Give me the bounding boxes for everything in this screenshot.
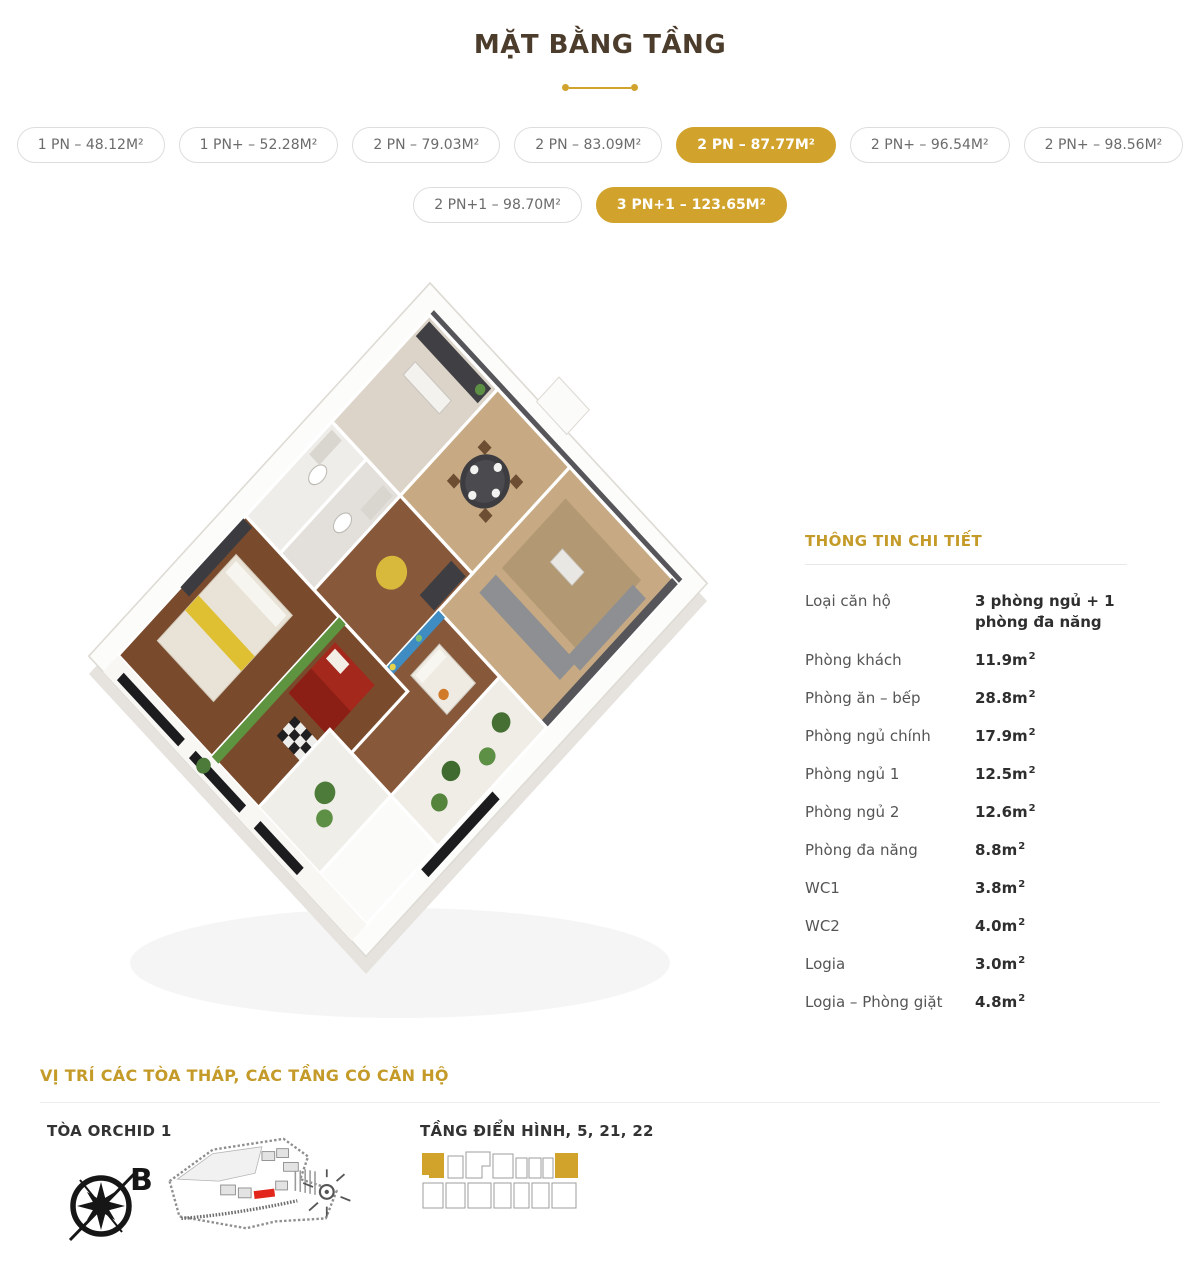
details-panel: THÔNG TIN CHI TIẾT Loại căn hộ 3 phòng n… bbox=[805, 532, 1127, 1030]
floorplan-3d-render bbox=[80, 268, 770, 1050]
detail-label: Phòng đa năng bbox=[805, 840, 975, 861]
area-value: 17.9m bbox=[975, 727, 1028, 745]
floor-plate-diagram bbox=[420, 1146, 580, 1212]
detail-label: WC2 bbox=[805, 916, 975, 937]
detail-label: Phòng khách bbox=[805, 650, 975, 671]
compass-north-label: B bbox=[130, 1163, 153, 1198]
detail-label: Phòng ngủ 2 bbox=[805, 802, 975, 823]
divider-dot bbox=[562, 84, 569, 91]
unit-tab-2-pn-83-09m[interactable]: 2 PN – 83.09M² bbox=[514, 127, 662, 163]
unit-tab-3-pn-1-123-65m[interactable]: 3 PN+1 – 123.65M² bbox=[596, 187, 787, 223]
detail-value: 12.5m2 bbox=[975, 764, 1036, 785]
highlighted-unit-left bbox=[422, 1153, 444, 1178]
detail-row: Logia3.0m2 bbox=[805, 954, 1127, 975]
unit-tab-1-pn-52-28m[interactable]: 1 PN+ – 52.28M² bbox=[179, 127, 339, 163]
detail-label: Loại căn hộ bbox=[805, 591, 975, 612]
area-superscript: 2 bbox=[1018, 917, 1025, 928]
detail-row-apartment-type: Loại căn hộ 3 phòng ngủ + 1 phòng đa năn… bbox=[805, 591, 1127, 633]
area-superscript: 2 bbox=[1029, 727, 1036, 738]
area-value: 28.8m bbox=[975, 689, 1028, 707]
unit-type-tabs-row-1: 1 PN – 48.12M²1 PN+ – 52.28M²2 PN – 79.0… bbox=[0, 127, 1200, 163]
detail-label: Logia bbox=[805, 954, 975, 975]
unit-tab-2-pn-98-56m[interactable]: 2 PN+ – 98.56M² bbox=[1024, 127, 1184, 163]
detail-rows-list: Phòng khách11.9m2Phòng ăn – bếp28.8m2Phò… bbox=[805, 650, 1127, 1013]
detail-label: Logia – Phòng giặt bbox=[805, 992, 975, 1013]
detail-value: 17.9m2 bbox=[975, 726, 1036, 747]
area-superscript: 2 bbox=[1018, 841, 1025, 852]
detail-value: 4.8m2 bbox=[975, 992, 1025, 1013]
unit-tab-1-pn-48-12m[interactable]: 1 PN – 48.12M² bbox=[17, 127, 165, 163]
tower-title: TÒA ORCHID 1 bbox=[47, 1122, 172, 1140]
page-title: MẶT BẰNG TẦNG bbox=[0, 30, 1200, 60]
divider-dot bbox=[631, 84, 638, 91]
area-superscript: 2 bbox=[1018, 879, 1025, 890]
masterplan-map bbox=[158, 1130, 358, 1243]
detail-row: Logia – Phòng giặt4.8m2 bbox=[805, 992, 1127, 1013]
area-value: 3.0m bbox=[975, 955, 1017, 973]
detail-row: Phòng ngủ chính17.9m2 bbox=[805, 726, 1127, 747]
divider-line bbox=[569, 87, 631, 89]
area-superscript: 2 bbox=[1029, 765, 1036, 776]
typical-floors-title: TẦNG ĐIỂN HÌNH, 5, 21, 22 bbox=[420, 1122, 654, 1140]
unit-tab-2-pn-96-54m[interactable]: 2 PN+ – 96.54M² bbox=[850, 127, 1010, 163]
area-superscript: 2 bbox=[1029, 689, 1036, 700]
detail-row: WC13.8m2 bbox=[805, 878, 1127, 899]
details-divider bbox=[805, 564, 1127, 565]
detail-row: Phòng ăn – bếp28.8m2 bbox=[805, 688, 1127, 709]
detail-value: 12.6m2 bbox=[975, 802, 1036, 823]
detail-value: 8.8m2 bbox=[975, 840, 1025, 861]
detail-label: WC1 bbox=[805, 878, 975, 899]
area-superscript: 2 bbox=[1018, 993, 1025, 1004]
detail-row: Phòng đa năng8.8m2 bbox=[805, 840, 1127, 861]
floorplan-3d-image bbox=[80, 268, 770, 1050]
details-heading: THÔNG TIN CHI TIẾT bbox=[805, 532, 1127, 550]
area-value: 12.5m bbox=[975, 765, 1028, 783]
area-value: 11.9m bbox=[975, 651, 1028, 669]
location-heading: VỊ TRÍ CÁC TÒA THÁP, CÁC TẦNG CÓ CĂN HỘ bbox=[40, 1066, 449, 1085]
unit-tab-2-pn-1-98-70m[interactable]: 2 PN+1 – 98.70M² bbox=[413, 187, 582, 223]
detail-value: 11.9m2 bbox=[975, 650, 1036, 671]
area-superscript: 2 bbox=[1029, 803, 1036, 814]
detail-value: 3.8m2 bbox=[975, 878, 1025, 899]
compass-rose-icon: B bbox=[58, 1148, 170, 1252]
detail-value: 4.0m2 bbox=[975, 916, 1025, 937]
area-superscript: 2 bbox=[1029, 651, 1036, 662]
detail-row: Phòng ngủ 112.5m2 bbox=[805, 764, 1127, 785]
area-value: 12.6m bbox=[975, 803, 1028, 821]
detail-value: 28.8m2 bbox=[975, 688, 1036, 709]
detail-value: 3 phòng ngủ + 1 phòng đa năng bbox=[975, 591, 1125, 633]
location-divider bbox=[40, 1102, 1160, 1103]
area-value: 8.8m bbox=[975, 841, 1017, 859]
unit-type-tabs-row-2: 2 PN+1 – 98.70M²3 PN+1 – 123.65M² bbox=[0, 187, 1200, 223]
area-value: 4.0m bbox=[975, 917, 1017, 935]
floor-plan-page: MẶT BẰNG TẦNG 1 PN – 48.12M²1 PN+ – 52.2… bbox=[0, 0, 1200, 1283]
detail-row: WC24.0m2 bbox=[805, 916, 1127, 937]
detail-row: Phòng khách11.9m2 bbox=[805, 650, 1127, 671]
detail-row: Phòng ngủ 212.6m2 bbox=[805, 802, 1127, 823]
detail-value: 3.0m2 bbox=[975, 954, 1025, 975]
detail-label: Phòng ăn – bếp bbox=[805, 688, 975, 709]
highlighted-unit-right bbox=[555, 1153, 578, 1178]
area-superscript: 2 bbox=[1018, 955, 1025, 966]
detail-label: Phòng ngủ chính bbox=[805, 726, 975, 747]
unit-tab-2-pn-87-77m[interactable]: 2 PN – 87.77M² bbox=[676, 127, 836, 163]
detail-label: Phòng ngủ 1 bbox=[805, 764, 975, 785]
title-divider bbox=[0, 84, 1200, 91]
area-value: 4.8m bbox=[975, 993, 1017, 1011]
unit-tab-2-pn-79-03m[interactable]: 2 PN – 79.03M² bbox=[352, 127, 500, 163]
area-value: 3.8m bbox=[975, 879, 1017, 897]
